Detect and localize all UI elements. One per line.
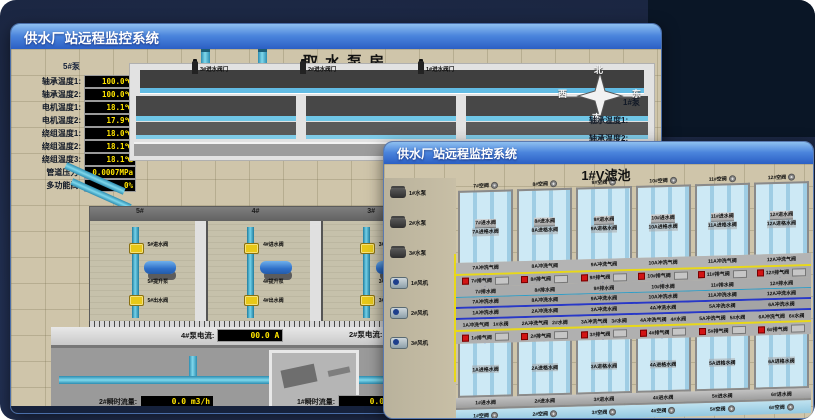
handwheel-icon [670,176,677,183]
wash-air-valve[interactable]: 9A冲洗气阀 [574,258,633,271]
flow1-label: 1#瞬时流量: [297,397,335,407]
grid-valve: 12A进格水阀 [767,219,796,228]
vent-valve-label: 4#排气阀 [649,328,670,336]
pump-bay[interactable]: 4# 4#进水阀 4#提升泵 4#出水阀 [195,221,311,322]
reading-label: 轴承温度1: [27,76,81,87]
bay-number: 3# [367,208,375,215]
actuator-box [554,274,568,282]
outlet-valve-icon[interactable] [244,295,259,306]
compass-west: 西 [558,87,567,100]
wash-pump[interactable]: 3#水泵 [384,238,456,268]
reading-label: 绕组温度2: [27,141,81,152]
filter-cell[interactable]: 3A进格水阀 [576,339,631,395]
intake-valve-label: 2#进水阀门 [308,65,336,73]
actuator-box [613,273,627,281]
wash-water-label: 5A冲洗水阀 [709,302,735,310]
vent-valve-label: 11#排气阀 [707,270,730,278]
wash-air-label: 3A冲洗气阀 [581,317,607,325]
wash-water-label: 12A冲洗水阀 [767,289,796,297]
flow2-label: 2#瞬时流量: [99,397,137,407]
front-window-titlebar: 供水厂站远程监控系统 [384,142,813,164]
wash-water-valve[interactable]: 2A冲洗水阀 [515,306,574,317]
actuator-box [554,331,568,339]
actuator-box [613,329,627,337]
vent-valve-label: 5#排气阀 [708,327,729,335]
grid-valve-label: 9A进格水阀 [591,224,617,232]
wash-air-label: 9A冲洗气阀 [591,260,617,268]
grid-valve-label: 10A进格水阀 [649,223,678,231]
grid-valve: 6A进格水阀 [768,356,794,365]
air-valve[interactable]: 6#空阀 [752,400,811,415]
wash-water-valve[interactable]: 11A冲洗水阀 [693,290,752,301]
wash-water-label: 9A冲洗水阀 [591,294,617,302]
vent-valve-label: 10#排气阀 [647,272,670,280]
air-valve-label: 5#空阀 [710,405,726,412]
wash-water-label: 3A冲洗水阀 [591,305,617,313]
reading-label: 绕组温度1: [27,128,81,139]
reading-label: 绕组温度3: [27,154,81,165]
wash-water-valve[interactable]: 12A冲洗水阀 [752,288,811,299]
filter-cell[interactable]: 2A进格水阀 [517,341,572,397]
intake-channel [136,122,296,139]
reading-label: 电机温度1: [27,102,81,113]
inlet-valve-icon[interactable] [244,243,259,254]
pump-bay[interactable]: 5# 5#进水阀 5#提升泵 5#出水阀 [90,221,195,322]
blower-icon [390,307,408,319]
red-valve-icon [638,273,645,280]
blower-label: 2#风机 [411,309,428,317]
filter-cell[interactable]: 5A进格水阀 [695,336,750,392]
bay-pump-label: 5#提升泵 [148,278,169,285]
filter-cell[interactable]: 12#进水阀 12A进格水阀 [754,181,809,255]
air-valve-label: 6#空阀 [769,404,785,411]
drain-valve-label: 9#排水阀 [594,284,615,292]
blower-label: 1#风机 [411,279,428,287]
intake-valve[interactable]: 3#进水阀门 [192,61,228,74]
drain-valve[interactable]: 11#排水阀 [693,279,752,291]
wash-air-label: 8A冲洗气阀 [532,262,558,270]
water-valve-label: 4#水阀 [671,315,687,322]
wash-air-label: 10A冲洗气阀 [649,259,678,267]
wash-air-label: 5A冲洗气阀 [699,314,725,322]
drain-valve[interactable]: 9#排水阀 [574,282,633,294]
air-manifold-pipe [454,254,456,382]
wash-water-label: 1A冲洗水阀 [472,309,498,317]
intake-channel [306,122,456,139]
discharge-stub [189,356,197,378]
grid-valve-label: 5A进格水阀 [709,359,735,367]
wash-water-label: 2A冲洗水阀 [532,307,558,315]
inlet-valve-label: 2#进水阀 [534,397,555,405]
wash-water-valve[interactable]: 3A冲洗水阀 [574,304,633,315]
wash-air-valve[interactable]: 12A冲洗气阀 [752,253,811,266]
drain-valve-label: 10#排水阀 [651,282,674,290]
inlet-valve-label: 12#进水阀 [770,211,793,219]
pump1-label: 1#泵 [623,97,640,108]
filter-cell[interactable]: 11#进水阀 11A进格水阀 [695,183,750,257]
filter-cell[interactable]: 9#进水阀 9A进格水阀 [576,186,631,260]
actuator-box [672,328,686,336]
blower[interactable]: 1#风机 [384,268,456,298]
actuator-box [792,268,806,276]
drain-valve[interactable]: 8#排水阀 [515,284,574,296]
vent-valve-label: 8#排气阀 [530,275,551,283]
wash-water-label: 8A冲洗水阀 [532,296,558,304]
red-valve-icon [521,332,528,339]
equipment-column: 1#水泵 2#水泵 3#水泵 [384,178,456,418]
grid-valve-label: 2A进格水阀 [532,364,558,372]
intake-valve[interactable]: 1#进水阀门 [418,61,454,74]
grid-valve-label: 3A进格水阀 [591,362,617,370]
inlet-valve-icon[interactable] [360,243,375,254]
grid-valve-label: 12A进格水阀 [767,219,796,227]
vent-valve-label: 3#排气阀 [590,330,611,338]
vent-valve-label: 2#排气阀 [530,332,551,340]
reading-label: 电机温度2: [27,115,81,126]
actuator-box [732,326,746,334]
handwheel-icon [491,181,498,188]
actuator-box [495,276,509,284]
filter-cell[interactable]: 1A进格水阀 [458,342,513,398]
bottom-filter-cells: 1A进格水阀 2A进格水阀 3A进格水阀 4A进格水阀 [456,334,811,398]
wash-air-label: 11A冲洗气阀 [708,257,737,265]
air-valve[interactable]: 2#空阀 [515,407,574,418]
vent-valve-label: 12#排气阀 [766,269,789,277]
outlet-valve-icon[interactable] [360,295,375,306]
wash-pump[interactable]: 1#水泵 [384,178,456,208]
filter-cell[interactable]: 6A进格水阀 [754,334,809,390]
inlet-valve-label: 11#进水阀 [711,212,734,220]
wash-water-valve[interactable]: 10A冲洗水阀 [634,291,693,302]
grid-valve-label: 4A进格水阀 [650,360,676,368]
wash-water-valve[interactable]: 1A冲洗水阀 [456,307,515,318]
pump-icon [390,248,406,258]
air-valve-label: 3#空阀 [592,409,608,416]
red-valve-icon [757,269,764,276]
grid-valve-label: 7A进格水阀 [472,228,498,236]
air-valve[interactable]: 4#空阀 [634,403,693,418]
v-filter-scene: 1#V滤池 1#水泵 2#水泵 [384,164,813,418]
drain-valve[interactable]: 10#排水阀 [634,280,693,292]
blower[interactable]: 2#风机 [384,298,456,328]
water-valve-label: 6#水阀 [789,312,805,319]
bay-number: 4# [252,208,260,215]
wash-air-valve[interactable]: 10A冲洗气阀 [634,256,693,269]
wash-water-valve[interactable]: 9A冲洗水阀 [574,293,633,304]
handwheel-icon [550,180,557,187]
air-valve-label: 2#空阀 [532,410,548,417]
grid-valve: 9A进格水阀 [591,224,617,233]
inlet-valve-label: 8#进水阀 [534,217,555,225]
air-valve-label: 4#空阀 [651,407,667,414]
inlet-valve-icon[interactable] [129,243,144,254]
valve-icon [418,61,424,74]
grid-valve: 4A进格水阀 [650,360,676,369]
red-valve-icon [640,329,647,336]
water-valve-label: 5#水阀 [730,313,746,320]
vent-valve-label: 9#排气阀 [590,274,611,282]
filter-cell[interactable]: 7#进水阀 7A进格水阀 [458,189,513,263]
wash-air-valve[interactable]: 11A冲洗气阀 [693,255,752,268]
air-valve-label: 1#空阀 [473,412,489,418]
wash-water-valve[interactable]: 8A冲洗水阀 [515,295,574,306]
red-valve-icon [462,278,469,285]
inlet-valve-label: 10#进水阀 [651,214,674,222]
window-v-filter[interactable]: 供水厂站远程监控系统 1#V滤池 1#水泵 2#水泵 [383,141,814,419]
wash-air-label: 4A冲洗气阀 [640,316,666,324]
water-valve-label: 2#水阀 [552,318,568,325]
wash-air-label: 7A冲洗气阀 [472,264,498,272]
grid-valve: 8A进格水阀 [532,226,558,235]
scene-title-filter: 1#V滤池 [581,165,630,184]
air-valve-label: 10#空阀 [649,177,667,185]
red-valve-icon [581,274,588,281]
wash-water-valve[interactable]: 5A冲洗水阀 [693,301,752,312]
wash-pumps: 1#水泵 2#水泵 3#水泵 [384,178,456,268]
top-filter-cells: 7#进水阀 7A进格水阀 8#进水阀 8A进格水阀 9#进水阀 9A进格水阀 [456,181,811,263]
drain-valve-label: 12#排水阀 [770,279,793,287]
bay-number: 5# [136,208,144,215]
handwheel-icon [788,173,795,180]
bay-pump-label: 4#提升泵 [263,278,284,285]
red-valve-icon [521,276,528,283]
grid-valve: 7A进格水阀 [472,227,498,236]
inlet-valve-label: 7#进水阀 [475,219,496,227]
reading-label: 轴承温度2: [27,89,81,100]
red-valve-icon [462,334,469,341]
actuator-box [733,269,747,277]
pump4-current-lcd: 00.0 A [217,329,283,342]
grid-valve: 1A进格水阀 [472,365,498,374]
wash-air-label: 6A冲洗气阀 [758,312,784,320]
bay-inlet-valve-label: 5#进水阀 [148,241,169,248]
blowers: 1#风机 2#风机 3#风机 [384,268,456,358]
water-valve-label: 3#水阀 [611,317,627,324]
filter-banks: 7#空阀8#空阀9#空阀10#空阀11#空阀12#空阀 7#进水阀 7A进格水阀… [456,171,811,418]
red-valve-icon [758,326,765,333]
drain-valve-label: 8#排水阀 [534,286,555,294]
right-caption-1: 轴承温度1: [589,115,628,126]
grid-valve: 3A进格水阀 [591,361,617,370]
blower[interactable]: 3#风机 [384,328,456,358]
drain-valve[interactable]: 7#排水阀 [456,285,515,297]
grid-valve: 11A进格水阀 [708,221,737,230]
handwheel-icon [550,410,557,417]
grid-valve: 5A进格水阀 [709,358,735,367]
air-valve[interactable]: 1#空阀 [456,408,515,418]
filter-cell[interactable]: 4A进格水阀 [636,337,691,393]
wash-air-label: 1A冲洗气阀 [463,321,489,329]
pump-label: 2#水泵 [409,219,426,227]
filter-cell[interactable]: 8#进水阀 8A进格水阀 [517,188,572,262]
red-valve-icon [698,271,705,278]
wash-water-valve[interactable]: 6A冲洗水阀 [752,299,811,310]
inlet-valve-label: 5#进水阀 [712,392,733,400]
air-valve-label: 7#空阀 [473,182,489,189]
vent-valve-label: 7#排气阀 [471,277,492,285]
grid-valve-label: 11A进格水阀 [708,221,737,229]
actuator-box [674,271,688,279]
red-valve-icon [699,327,706,334]
compass-north: 北 [594,63,603,76]
intake-valve-label: 3#进水阀门 [200,65,228,73]
wash-water-label: 4A冲洗水阀 [650,304,676,312]
valve-icon [300,61,306,74]
blower-label: 3#风机 [411,339,428,347]
pump4-current-label: 4#泵电流: [181,330,214,341]
air-valve-label: 11#空阀 [709,175,727,183]
intake-valve[interactable]: 2#进水阀门 [300,61,336,74]
scada-desktop: 供水厂站远程监控系统 取水泵房 5#泵 轴承温度1: 100.0℃ [0,0,815,420]
wash-water-label: 7A冲洗水阀 [472,298,498,306]
back-window-title: 供水厂站远程监控系统 [24,27,159,47]
drain-valve-label: 7#排水阀 [475,287,496,295]
filter-cell[interactable]: 10#进水阀 10A进格水阀 [636,184,691,258]
grid-valve: 2A进格水阀 [532,363,558,372]
intake-channel [306,96,456,121]
vent-valve-label: 1#排气阀 [471,333,492,341]
pump4-current: 4#泵电流: 00.0 A [181,329,283,342]
inlet-valve-label: 1#进水阀 [475,398,496,406]
blower-icon [390,337,408,349]
inlet-valve-label: 9#进水阀 [594,216,615,224]
water-valve-label: 1#水阀 [493,320,509,327]
vent-valve-label: 6#排气阀 [767,325,788,333]
red-valve-icon [581,331,588,338]
pump-icon [390,218,406,228]
bay-outlet-valve-label: 4#出水阀 [263,297,284,304]
intake-valve-label: 1#进水阀门 [426,65,454,73]
drain-valve[interactable]: 12#排水阀 [752,277,811,289]
pump2-current-label: 2#泵电流: [349,329,382,340]
lift-pump-icon[interactable] [260,261,292,274]
handwheel-icon [668,407,675,414]
air-valve[interactable]: 5#空阀 [693,402,752,417]
bay-outlet-valve-label: 5#出水阀 [148,297,169,304]
wash-water-label: 11A冲洗水阀 [708,291,737,299]
background-panel [648,0,815,137]
wash-water-valve[interactable]: 4A冲洗水阀 [634,302,693,313]
wash-water-valve[interactable]: 7A冲洗水阀 [456,296,515,307]
back-window-titlebar: 供水厂站远程监控系统 [11,24,661,49]
grid-valve-label: 1A进格水阀 [472,365,498,373]
inlet-valve-label: 6#进水阀 [771,390,792,398]
drain-valve-label: 11#排水阀 [711,281,734,289]
outlet-valve-icon[interactable] [129,295,144,306]
actuator-box [791,324,805,332]
bay-inlet-valve-label: 4#进水阀 [263,241,284,248]
wash-air-valve[interactable]: 8A冲洗气阀 [515,260,574,273]
handwheel-icon [787,404,794,411]
blower-icon [390,277,408,289]
valve-icon [192,61,198,74]
grid-valve-label: 8A进格水阀 [532,226,558,234]
wash-air-label: 12A冲洗气阀 [767,255,796,263]
handwheel-icon [729,175,736,182]
actuator-box [495,332,509,340]
wash-air-valve[interactable]: 7A冲洗气阀 [456,261,515,274]
lift-pump-icon[interactable] [144,261,176,274]
inlet-valve-label: 3#进水阀 [594,395,615,403]
wash-pump[interactable]: 2#水泵 [384,208,456,238]
handwheel-icon [609,408,616,415]
handwheel-icon [728,405,735,412]
handwheel-icon [491,412,498,418]
air-valve-label: 12#空阀 [768,173,786,181]
pump-label: 3#水泵 [409,249,426,257]
wash-air-label: 2A冲洗气阀 [522,319,548,327]
front-window-title: 供水厂站远程监控系统 [397,145,517,162]
air-valve[interactable]: 3#空阀 [574,405,633,418]
intake-channel [136,96,296,121]
wash-water-label: 6A冲洗水阀 [768,300,794,308]
pump-icon [390,188,406,198]
wash-water-label: 10A冲洗水阀 [649,293,678,301]
pump-label: 1#水泵 [409,189,426,197]
grid-valve: 10A进格水阀 [649,222,678,231]
inlet-valve-label: 4#进水阀 [653,393,674,401]
grid-valve-label: 6A进格水阀 [768,357,794,365]
air-valve-label: 8#空阀 [532,180,548,187]
